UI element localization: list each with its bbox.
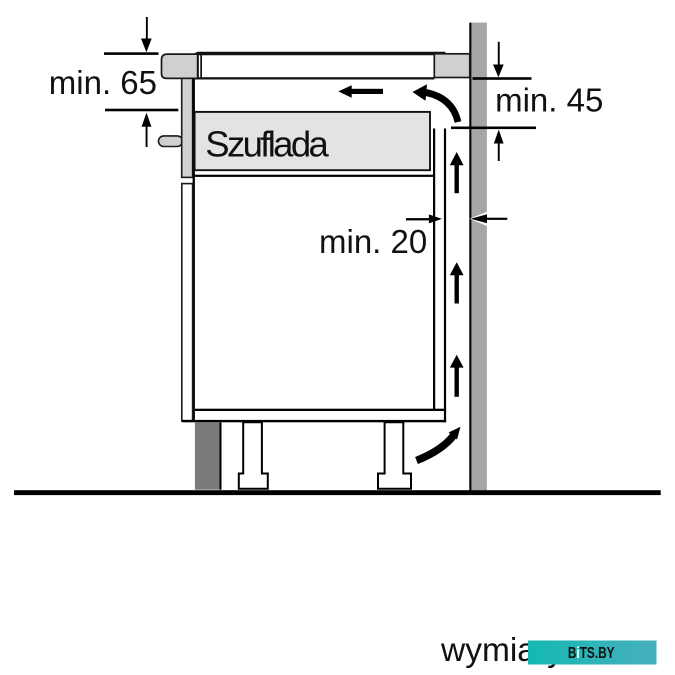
- svg-text:min. 65: min. 65: [49, 64, 157, 101]
- svg-text:Szuflada: Szuflada: [205, 124, 329, 165]
- svg-text:min. 45: min. 45: [495, 82, 603, 119]
- svg-text:min. 20: min. 20: [319, 223, 427, 260]
- svg-text:BiTS.BY: BiTS.BY: [568, 645, 615, 662]
